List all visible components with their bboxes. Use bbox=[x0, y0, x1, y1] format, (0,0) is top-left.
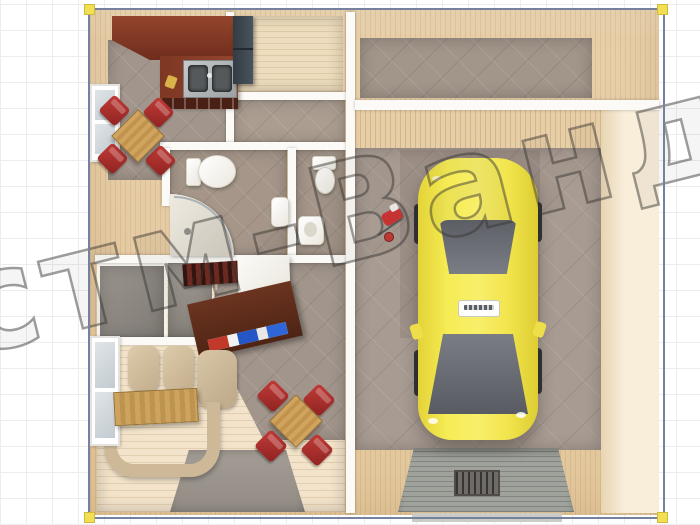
selection-handle-top-left[interactable] bbox=[84, 4, 95, 15]
selection-border[interactable] bbox=[88, 8, 665, 519]
design-canvas: стм-Ванда bbox=[0, 0, 700, 525]
selection-handle-bottom-left[interactable] bbox=[84, 512, 95, 523]
selection-handle-bottom-right[interactable] bbox=[657, 512, 668, 523]
selection-handle-top-right[interactable] bbox=[657, 4, 668, 15]
